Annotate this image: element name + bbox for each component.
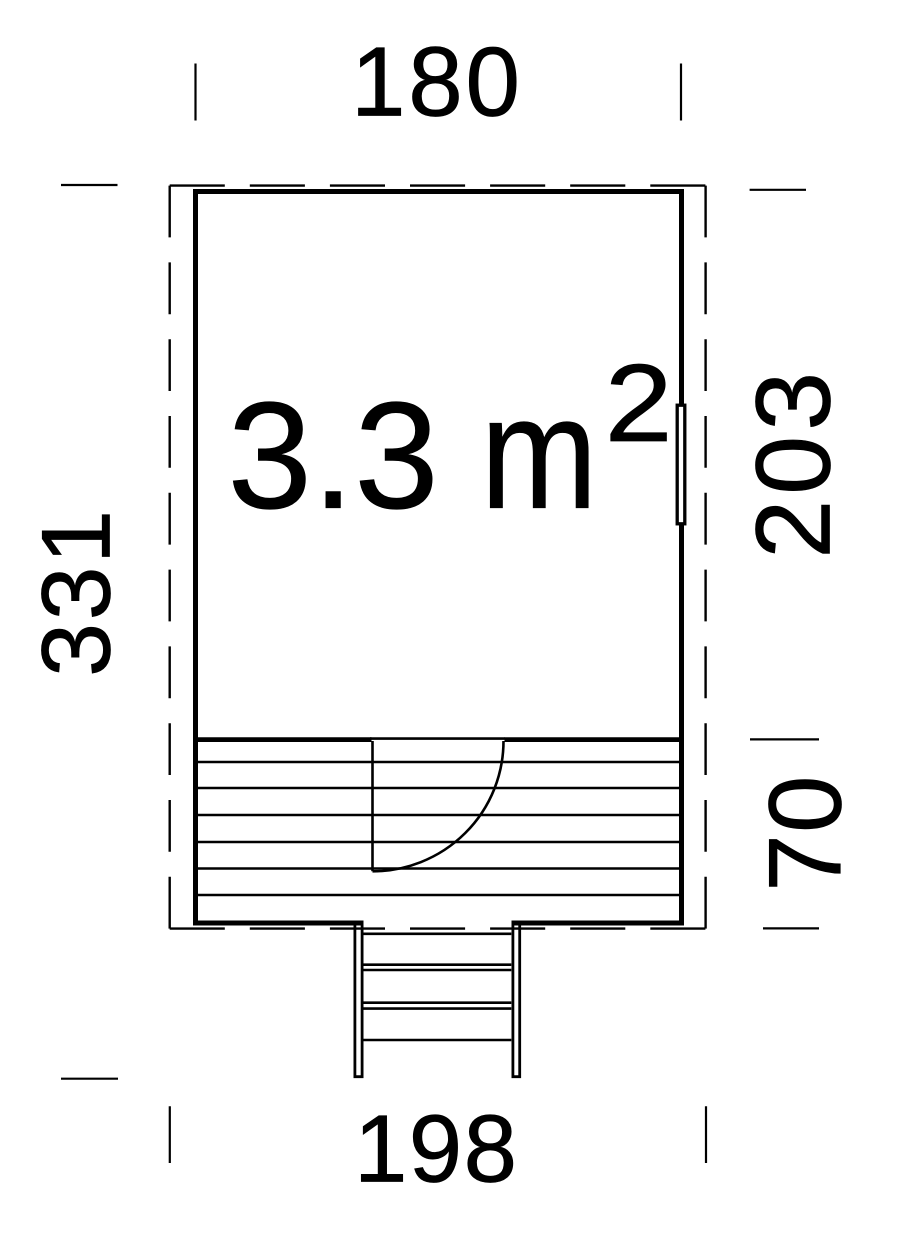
svg-text:203: 203 bbox=[734, 372, 852, 559]
svg-text:3.3: 3.3 bbox=[228, 371, 439, 541]
svg-text:331: 331 bbox=[21, 510, 130, 677]
svg-text:70: 70 bbox=[747, 776, 862, 892]
svg-text:2: 2 bbox=[605, 342, 673, 465]
svg-text:m: m bbox=[481, 363, 598, 542]
svg-text:198: 198 bbox=[354, 1096, 517, 1203]
svg-text:180: 180 bbox=[351, 27, 520, 137]
